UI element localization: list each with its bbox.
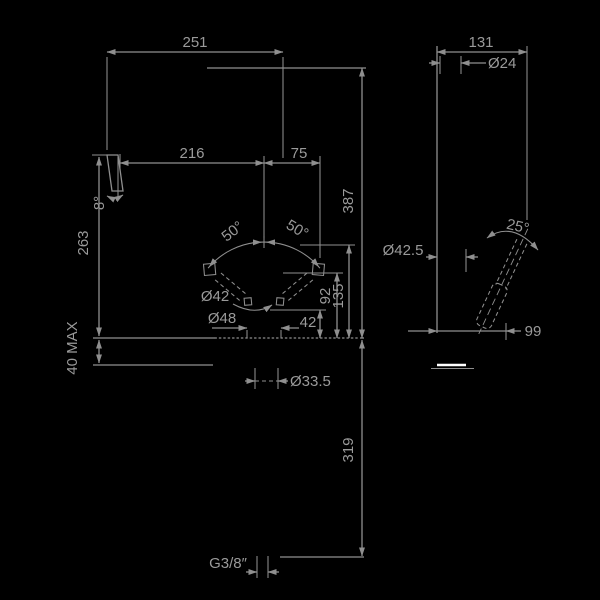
dim-label-50deg-right: 50° — [283, 217, 311, 243]
dim-label-263: 263 — [75, 230, 92, 255]
dim-base-diameter: Ø48 — [208, 310, 299, 338]
dim-shank-diameter: Ø33.5 — [245, 368, 331, 390]
dim-spout-height: 263 — [75, 155, 118, 336]
faucet-dimension-drawing: 251 216 75 8° 263 — [0, 0, 600, 600]
dim-body-diameter: Ø42.5 — [383, 242, 478, 272]
dim-handle-angle: 25° — [487, 216, 538, 250]
dim-label-99: 99 — [525, 323, 542, 340]
dim-label-25deg: 25° — [505, 216, 531, 238]
dim-label-50deg-left: 50° — [219, 218, 247, 245]
lever-centerline — [479, 229, 528, 334]
dim-label-131: 131 — [468, 34, 493, 51]
leader-line — [233, 304, 272, 310]
dim-label-dia48: Ø48 — [208, 310, 236, 327]
dim-label-42: 42 — [300, 314, 317, 331]
dim-thread: G3/8″ — [209, 555, 279, 578]
dim-depth-overall: 131 — [437, 34, 527, 333]
dim-label-75: 75 — [291, 145, 308, 162]
side-view: 131 Ø24 Ø42.5 25° — [383, 34, 542, 369]
lever-shaft — [506, 244, 527, 289]
dim-label-319: 319 — [340, 437, 357, 462]
lever-knob — [198, 258, 221, 281]
lever-knob — [307, 258, 330, 281]
dim-handle-reach: 99 — [408, 323, 541, 340]
dim-label-216: 216 — [179, 145, 204, 162]
dim-height-stack: 42 92 135 387 — [270, 68, 362, 338]
mounting-deck: 40 MAX — [64, 321, 364, 374]
dim-label-40max: 40 MAX — [64, 321, 81, 374]
lever-knob — [475, 282, 509, 330]
front-view: 251 216 75 8° 263 — [64, 34, 366, 578]
lever-shaft — [281, 273, 307, 295]
spout-outlet: 8° — [91, 155, 123, 210]
counter-highlight — [431, 365, 474, 369]
dim-label-251: 251 — [182, 34, 207, 51]
label-handle-diameter: Ø42 — [201, 288, 272, 310]
dim-label-dia42-5: Ø42.5 — [383, 242, 424, 259]
dim-spout-offset: 216 75 — [120, 145, 320, 258]
angle-arc — [107, 195, 123, 198]
lever-hub — [241, 294, 255, 308]
dim-label-dia33-5: Ø33.5 — [290, 373, 331, 390]
dim-label-387: 387 — [340, 188, 357, 213]
technical-drawing-canvas: 251 216 75 8° 263 — [0, 0, 600, 600]
dim-width-overall: 251 — [107, 34, 283, 158]
lever-hub — [273, 294, 287, 308]
dim-label-g38: G3/8″ — [209, 555, 248, 572]
dim-label-dia42: Ø42 — [201, 288, 229, 305]
lever-shaft — [496, 239, 517, 284]
spout-outline — [107, 155, 123, 191]
dim-label-135: 135 — [330, 283, 347, 308]
lever-shaft — [287, 280, 313, 302]
dim-label-dia24: Ø24 — [488, 55, 516, 72]
side-lever — [472, 225, 536, 337]
dim-spout-diameter: Ø24 — [429, 55, 516, 74]
